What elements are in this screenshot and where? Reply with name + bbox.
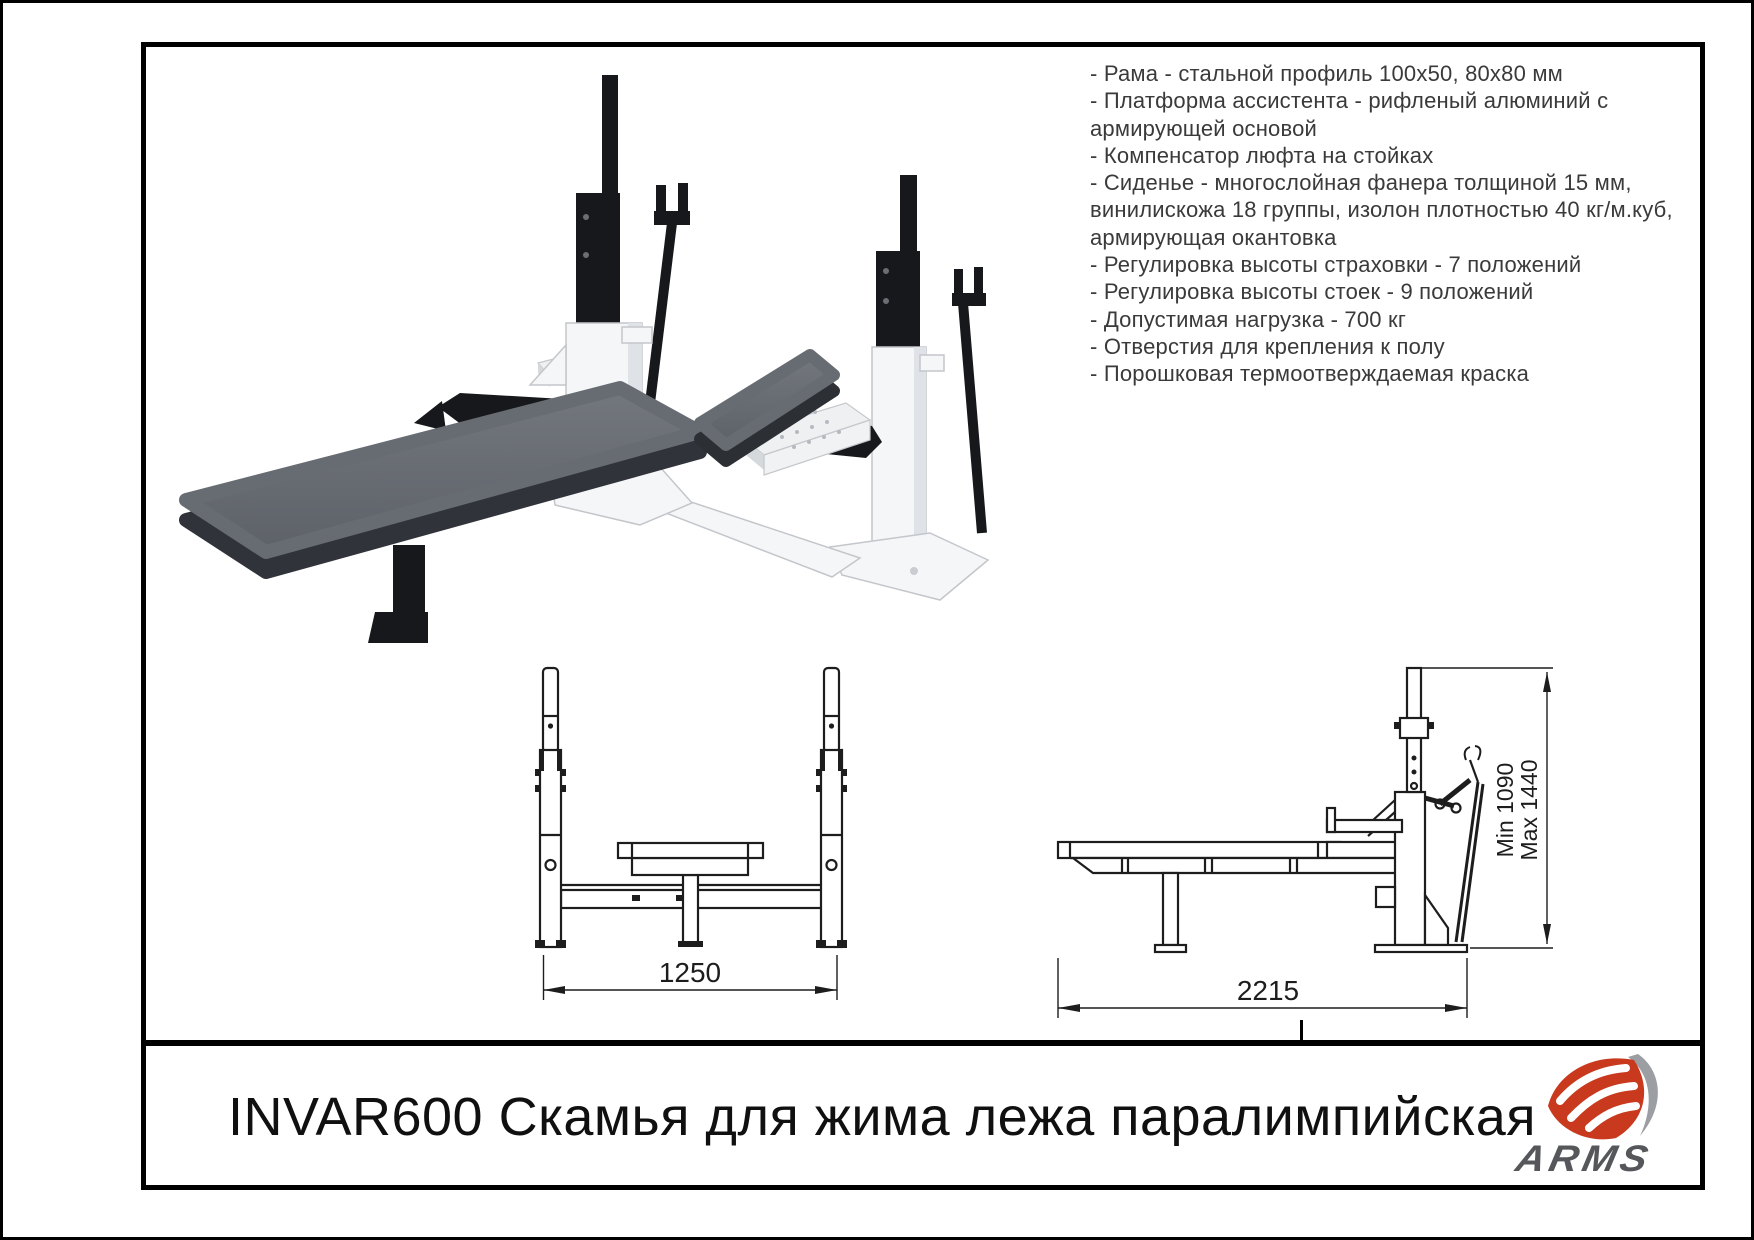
side-view-drawing: Min 1090 Max 1440 2215 <box>1050 660 1570 1020</box>
arms-logo-emblem <box>1540 1048 1672 1146</box>
bench-profile <box>1058 842 1400 952</box>
upright-left <box>535 668 566 948</box>
spec-line: армирующей основой <box>1090 115 1690 142</box>
dimension-length: 2215 <box>1058 958 1467 1018</box>
spec-sheet-page: - Рама - стальной профиль 100х50, 80х80 … <box>0 0 1754 1240</box>
dimension-width: 1250 <box>544 955 838 1000</box>
side-height-max-label: Max 1440 <box>1516 759 1542 860</box>
spec-line: - Допустимая нагрузка - 700 кг <box>1090 306 1690 333</box>
spec-line: - Порошковая термоотверждаемая краска <box>1090 360 1690 387</box>
spec-line: - Регулировка высоты стоек - 9 положений <box>1090 278 1690 305</box>
upright-right <box>816 668 847 948</box>
spec-line: - Рама - стальной профиль 100х50, 80х80 … <box>1090 60 1690 87</box>
page-title: INVAR600 Скамья для жима лежа паралимпий… <box>222 1072 1542 1162</box>
upright-profile <box>1327 668 1483 952</box>
spec-line: - Сиденье - многослойная фанера толщиной… <box>1090 169 1690 196</box>
spec-line: - Платформа ассистента - рифленый алюмин… <box>1090 87 1690 114</box>
spec-line: - Регулировка высоты страховки - 7 полож… <box>1090 251 1690 278</box>
spec-line: винилискожа 18 группы, изолон плотностью… <box>1090 196 1690 223</box>
bench-leg <box>368 545 428 643</box>
front-width-label: 1250 <box>659 957 721 988</box>
side-height-min-label: Min 1090 <box>1492 763 1518 858</box>
title-block-separator <box>141 1040 1705 1046</box>
spec-line: армирующая окантовка <box>1090 224 1690 251</box>
product-render <box>170 55 950 625</box>
spec-line: - Компенсатор люфта на стойках <box>1090 142 1690 169</box>
side-length-label: 2215 <box>1237 975 1299 1006</box>
arms-logo-text: ARMS <box>1487 1138 1682 1180</box>
spec-line: - Отверстия для крепления к полу <box>1090 333 1690 360</box>
front-view-drawing: 1250 <box>520 655 880 1005</box>
spec-list: - Рама - стальной профиль 100х50, 80х80 … <box>1090 60 1690 388</box>
